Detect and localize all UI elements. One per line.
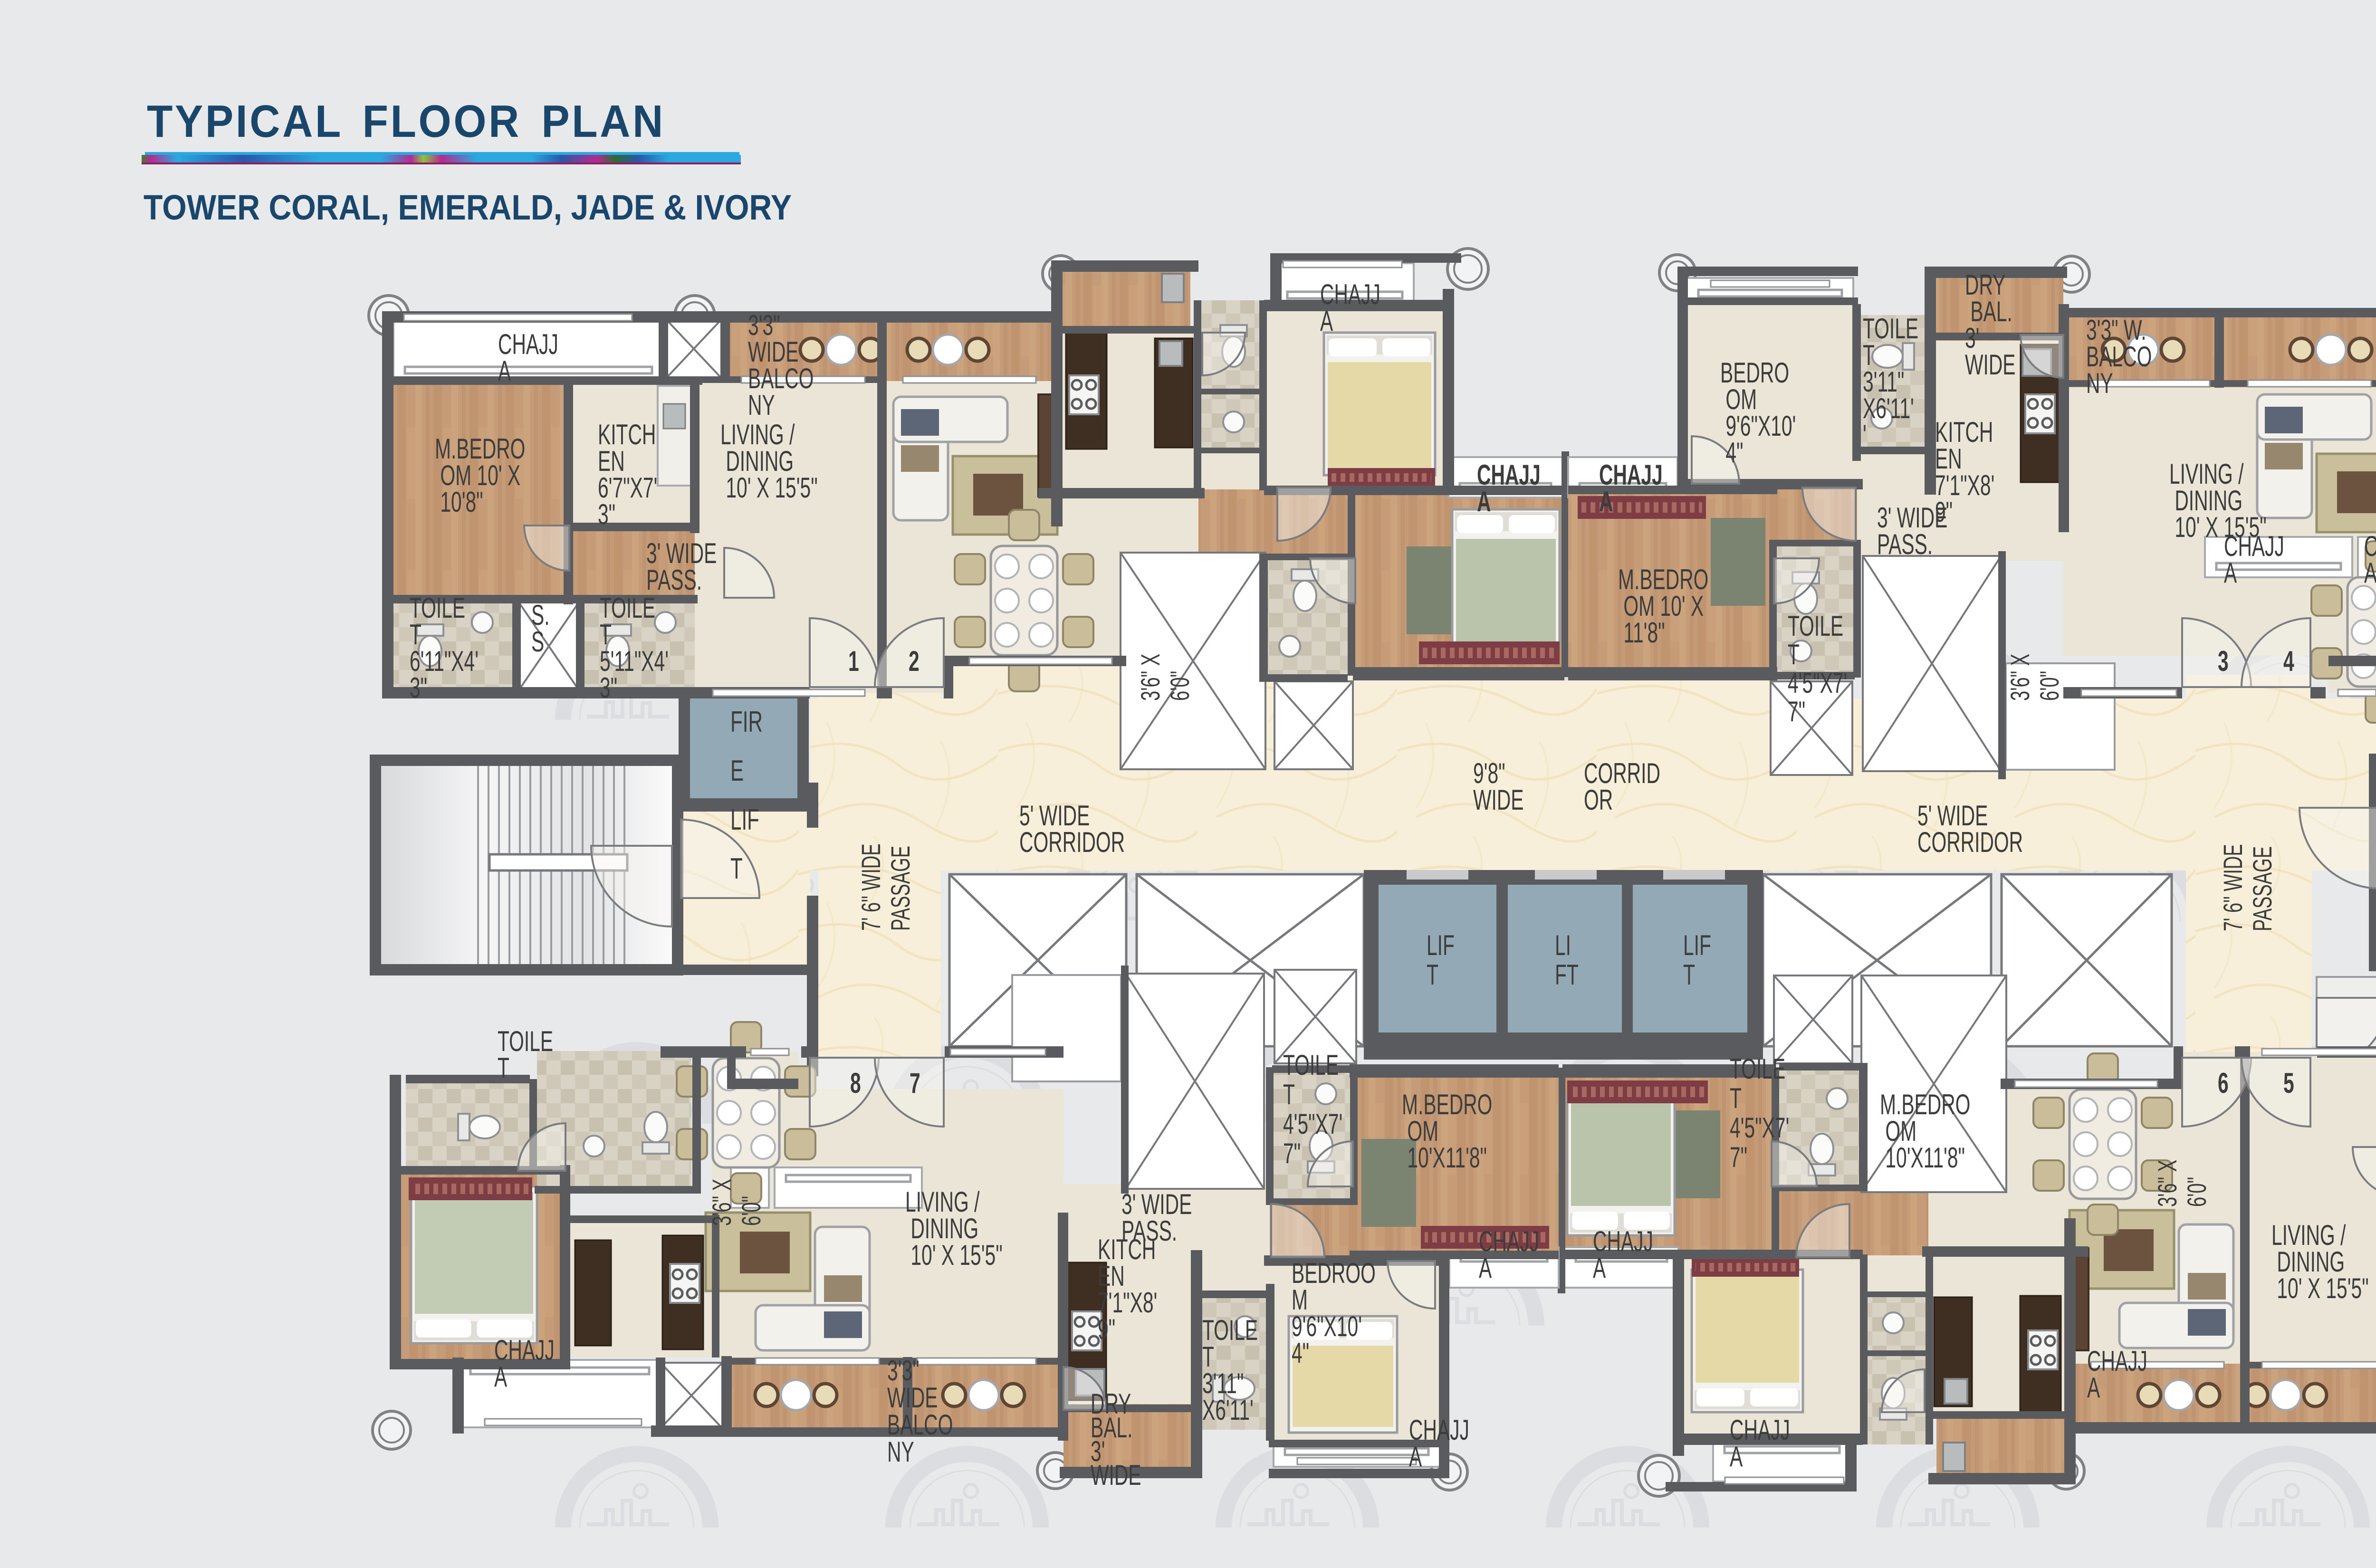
- svg-text:TOWER CORAL, EMERALD, JADE & I: TOWER CORAL, EMERALD, JADE & IVORY: [144, 188, 792, 227]
- svg-text:6: 6: [2218, 1067, 2229, 1099]
- svg-text:7' 6" WIDEPASSAGE: 7' 6" WIDEPASSAGE: [857, 843, 916, 931]
- svg-text:4: 4: [2283, 645, 2294, 677]
- svg-text:1: 1: [848, 645, 859, 677]
- svg-text:7: 7: [910, 1067, 920, 1099]
- svg-text:8: 8: [850, 1067, 861, 1099]
- svg-text:7' 6" WIDEPASSAGE: 7' 6" WIDEPASSAGE: [2219, 844, 2278, 931]
- svg-text:2: 2: [909, 645, 920, 677]
- svg-text:TYPICAL FLOOR PLAN: TYPICAL FLOOR PLAN: [147, 96, 665, 147]
- svg-text:3: 3: [2218, 645, 2229, 677]
- svg-text:5: 5: [2283, 1067, 2294, 1099]
- svg-text:CHA: CHA: [2364, 530, 2376, 589]
